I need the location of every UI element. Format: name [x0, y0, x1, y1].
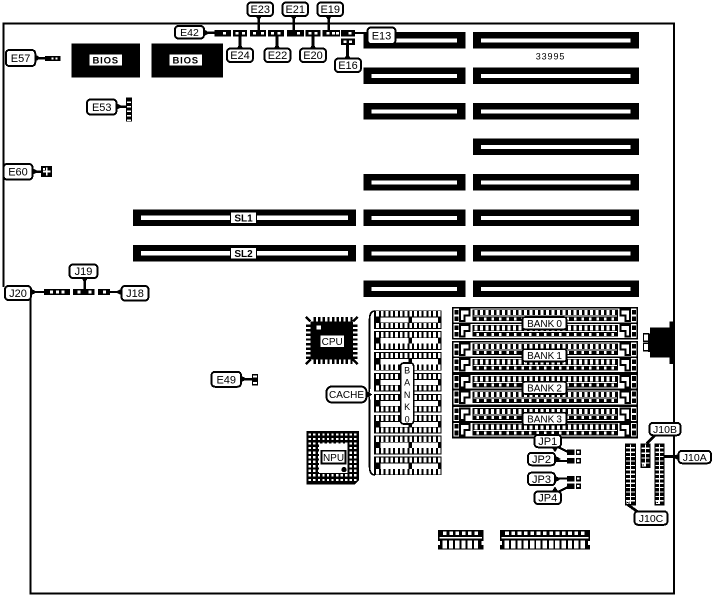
svg-text:JP1: JP1: [538, 436, 557, 448]
svg-text:E60: E60: [8, 167, 28, 179]
svg-text:NPU: NPU: [323, 453, 344, 464]
svg-text:E42: E42: [180, 27, 199, 39]
svg-text:CACHE: CACHE: [329, 390, 364, 401]
svg-text:B: B: [404, 366, 410, 376]
svg-text:BANK 2: BANK 2: [527, 384, 562, 395]
svg-text:33995: 33995: [536, 52, 566, 62]
svg-text:J19: J19: [75, 266, 93, 278]
svg-text:E24: E24: [230, 50, 250, 62]
svg-text:CPU: CPU: [322, 337, 343, 348]
svg-text:BANK 1: BANK 1: [527, 351, 562, 362]
svg-text:E53: E53: [92, 102, 112, 114]
svg-text:E22: E22: [268, 50, 288, 62]
svg-text:E23: E23: [250, 4, 270, 16]
svg-text:E13: E13: [372, 31, 392, 43]
svg-text:E57: E57: [11, 53, 31, 65]
svg-text:SL2: SL2: [234, 249, 253, 260]
svg-text:JP2: JP2: [532, 454, 551, 466]
svg-text:E20: E20: [303, 50, 323, 62]
svg-text:E21: E21: [285, 4, 305, 16]
svg-text:JP3: JP3: [532, 474, 551, 486]
svg-text:J10C: J10C: [639, 513, 664, 525]
svg-text:BIOS: BIOS: [92, 56, 118, 67]
svg-text:0: 0: [405, 414, 410, 424]
svg-text:J18: J18: [126, 288, 144, 300]
svg-text:E19: E19: [320, 4, 340, 16]
svg-text:J10A: J10A: [683, 452, 707, 464]
svg-text:BIOS: BIOS: [172, 56, 198, 67]
svg-text:N: N: [404, 390, 411, 400]
svg-text:JP4: JP4: [538, 493, 557, 505]
svg-text:J20: J20: [9, 288, 27, 300]
svg-text:E16: E16: [338, 60, 358, 72]
svg-text:J10B: J10B: [653, 424, 677, 436]
svg-text:A: A: [404, 378, 410, 388]
svg-text:BANK 3: BANK 3: [527, 415, 562, 426]
svg-text:BANK 0: BANK 0: [527, 319, 562, 330]
svg-text:E49: E49: [216, 374, 236, 386]
svg-text:K: K: [404, 402, 410, 412]
svg-text:SL1: SL1: [234, 213, 253, 224]
